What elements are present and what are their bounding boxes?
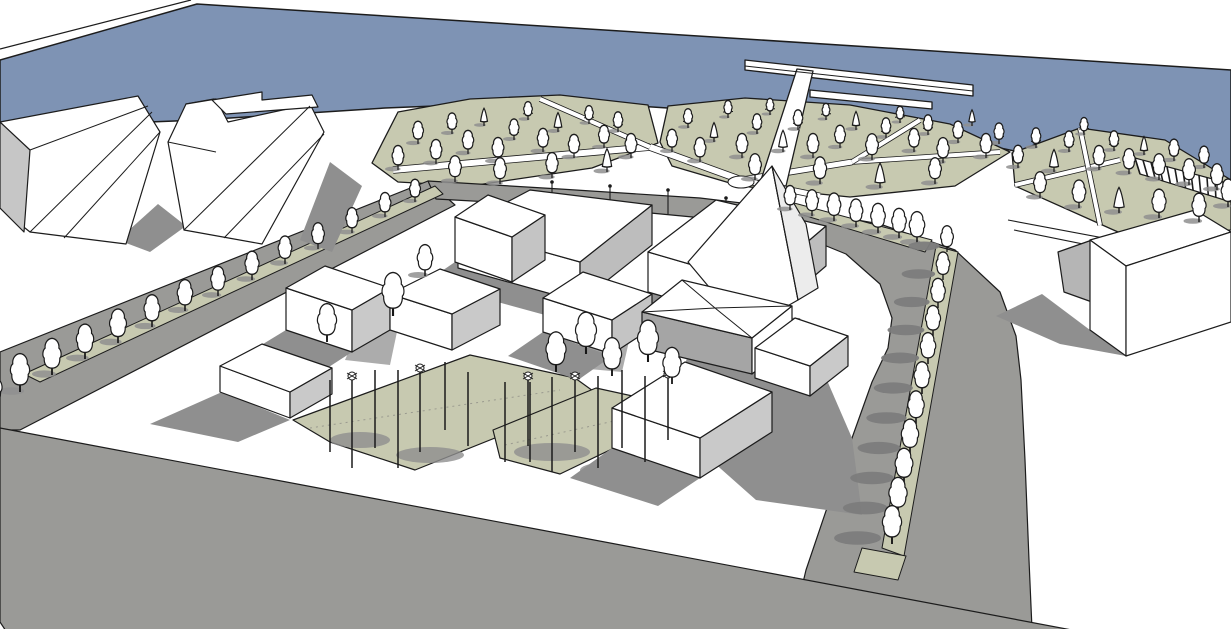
lamp-head: [550, 180, 554, 184]
tree: [929, 158, 942, 179]
tree: [941, 226, 954, 247]
tree: [245, 251, 259, 274]
tree: [667, 129, 678, 147]
tree: [1183, 159, 1196, 180]
tree: [1211, 164, 1224, 185]
tree: [602, 338, 621, 369]
site-model-canvas: [0, 0, 1231, 629]
tree: [892, 208, 907, 232]
tree: [462, 130, 473, 149]
tree: [43, 338, 61, 368]
tree: [1072, 180, 1086, 202]
tree: [813, 157, 826, 179]
tree: [637, 320, 658, 354]
tree: [1093, 145, 1105, 164]
shadow-blob: [858, 442, 901, 454]
tree: [694, 137, 706, 156]
tree: [835, 125, 846, 143]
tree: [625, 133, 637, 152]
tree: [914, 362, 930, 388]
shadow-blob: [894, 297, 930, 307]
tree: [881, 118, 891, 134]
tree: [1192, 193, 1206, 216]
tree: [896, 106, 904, 119]
tree: [871, 203, 886, 227]
tree: [895, 448, 913, 477]
tree: [278, 236, 292, 258]
tree: [382, 272, 404, 308]
tree: [211, 266, 226, 290]
tree: [822, 103, 830, 116]
tree: [793, 110, 803, 126]
tree: [1199, 146, 1210, 163]
tree: [494, 158, 507, 179]
shadow-blob: [902, 269, 936, 279]
tree: [923, 115, 933, 131]
tree: [849, 199, 863, 221]
tree: [784, 185, 796, 204]
tree: [882, 506, 901, 537]
tree: [599, 125, 610, 143]
tree: [1064, 131, 1074, 147]
tree: [447, 113, 457, 129]
tree: [613, 112, 623, 128]
shadow-blob: [330, 432, 390, 448]
tree: [110, 309, 127, 337]
lamp-head: [666, 188, 670, 192]
tree: [379, 192, 391, 211]
tree: [827, 193, 841, 215]
tree: [417, 245, 433, 270]
tree: [509, 119, 519, 135]
tree: [1109, 131, 1119, 147]
tree: [546, 153, 558, 173]
tree: [953, 121, 964, 138]
tree: [901, 419, 918, 447]
tree: [683, 109, 692, 124]
tree: [10, 354, 29, 385]
tree: [980, 133, 992, 152]
tree: [908, 128, 919, 147]
tree: [937, 138, 949, 158]
tree: [1169, 139, 1180, 156]
shadow-blob: [908, 242, 939, 251]
tree: [936, 252, 950, 274]
tree: [413, 121, 424, 139]
tree: [546, 332, 566, 365]
tree: [449, 156, 462, 177]
tree: [1013, 145, 1024, 163]
tree: [908, 391, 924, 418]
tree: [920, 333, 936, 358]
shadow-blob: [874, 382, 913, 393]
shadow-blob: [834, 531, 881, 544]
tree: [1152, 189, 1166, 212]
tree: [317, 304, 336, 335]
tree: [889, 477, 907, 507]
tree: [925, 305, 940, 330]
tree: [585, 106, 594, 120]
tree: [1080, 117, 1088, 130]
tree: [724, 100, 732, 113]
tree: [312, 223, 325, 244]
shadow-blob: [866, 412, 906, 424]
tree: [144, 295, 160, 321]
tree: [430, 139, 442, 158]
tree: [410, 179, 421, 197]
tree: [752, 114, 762, 130]
tree: [1153, 154, 1166, 175]
shadow-blob: [850, 472, 894, 484]
lamp-head: [724, 196, 728, 200]
tree: [909, 212, 925, 237]
park: [372, 95, 658, 186]
tree: [994, 123, 1004, 139]
shadow-blob: [887, 325, 924, 336]
east-building: [1058, 240, 1092, 302]
tree: [663, 347, 681, 377]
tree: [524, 102, 533, 116]
tree: [177, 280, 193, 305]
tree: [392, 145, 404, 164]
shadow-blob: [843, 502, 888, 515]
tree: [736, 133, 748, 152]
tree: [931, 278, 946, 302]
tree: [568, 134, 579, 153]
tree: [537, 128, 548, 147]
tree: [76, 324, 93, 352]
tree: [749, 154, 762, 175]
tree: [1031, 128, 1041, 144]
tree: [766, 98, 774, 111]
model-viewport: [0, 0, 1231, 629]
tree: [806, 190, 819, 211]
tree: [1123, 149, 1135, 169]
tree: [807, 133, 819, 152]
shadow-blob: [396, 447, 464, 463]
tree: [1034, 172, 1047, 193]
tree: [492, 137, 504, 156]
tree: [575, 312, 596, 346]
lamp-head: [608, 184, 612, 188]
shadow-blob: [881, 353, 919, 364]
tree: [866, 134, 879, 155]
tree: [346, 208, 358, 228]
